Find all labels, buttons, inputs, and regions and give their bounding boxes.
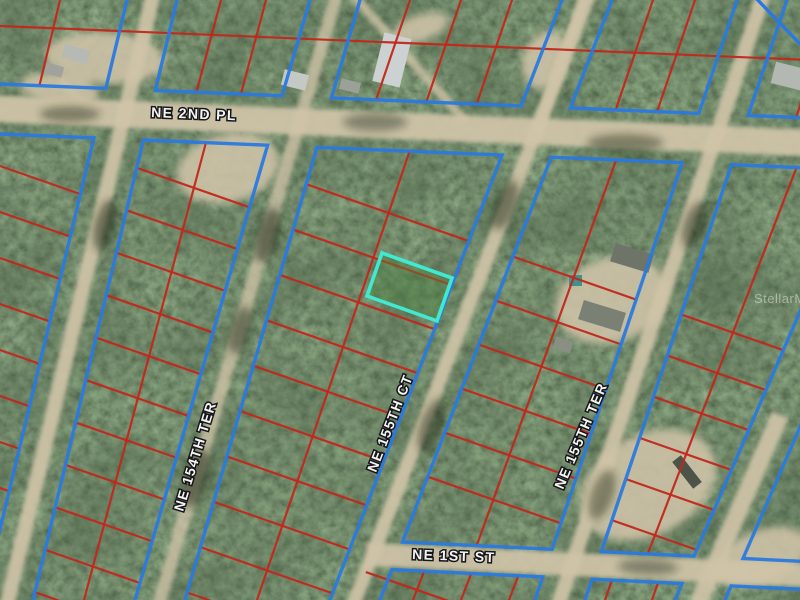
aerial-parcel-map: NE 2ND PL NE 154TH TER NE 155TH CT NE 15… bbox=[0, 0, 800, 600]
watermark: StellarMLS bbox=[754, 291, 800, 306]
tree-shadow bbox=[343, 113, 407, 131]
tree-shadow bbox=[40, 106, 100, 122]
tree-shadow bbox=[587, 134, 663, 152]
street-label-ne-1st-st: NE 1ST ST bbox=[412, 546, 496, 565]
street-label-ne-2nd-pl: NE 2ND PL bbox=[151, 104, 237, 123]
